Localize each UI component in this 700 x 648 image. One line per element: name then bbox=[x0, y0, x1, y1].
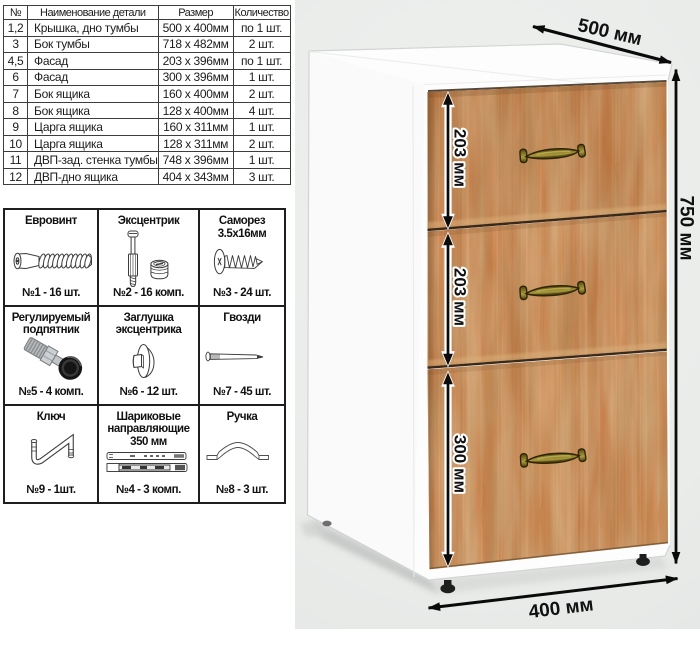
svg-text:203 мм: 203 мм bbox=[451, 129, 470, 187]
svg-text:300 мм: 300 мм bbox=[451, 435, 470, 493]
svg-text:750 мм: 750 мм bbox=[675, 195, 696, 260]
svg-text:400 мм: 400 мм bbox=[528, 594, 595, 623]
svg-text:203 мм: 203 мм bbox=[451, 268, 470, 326]
